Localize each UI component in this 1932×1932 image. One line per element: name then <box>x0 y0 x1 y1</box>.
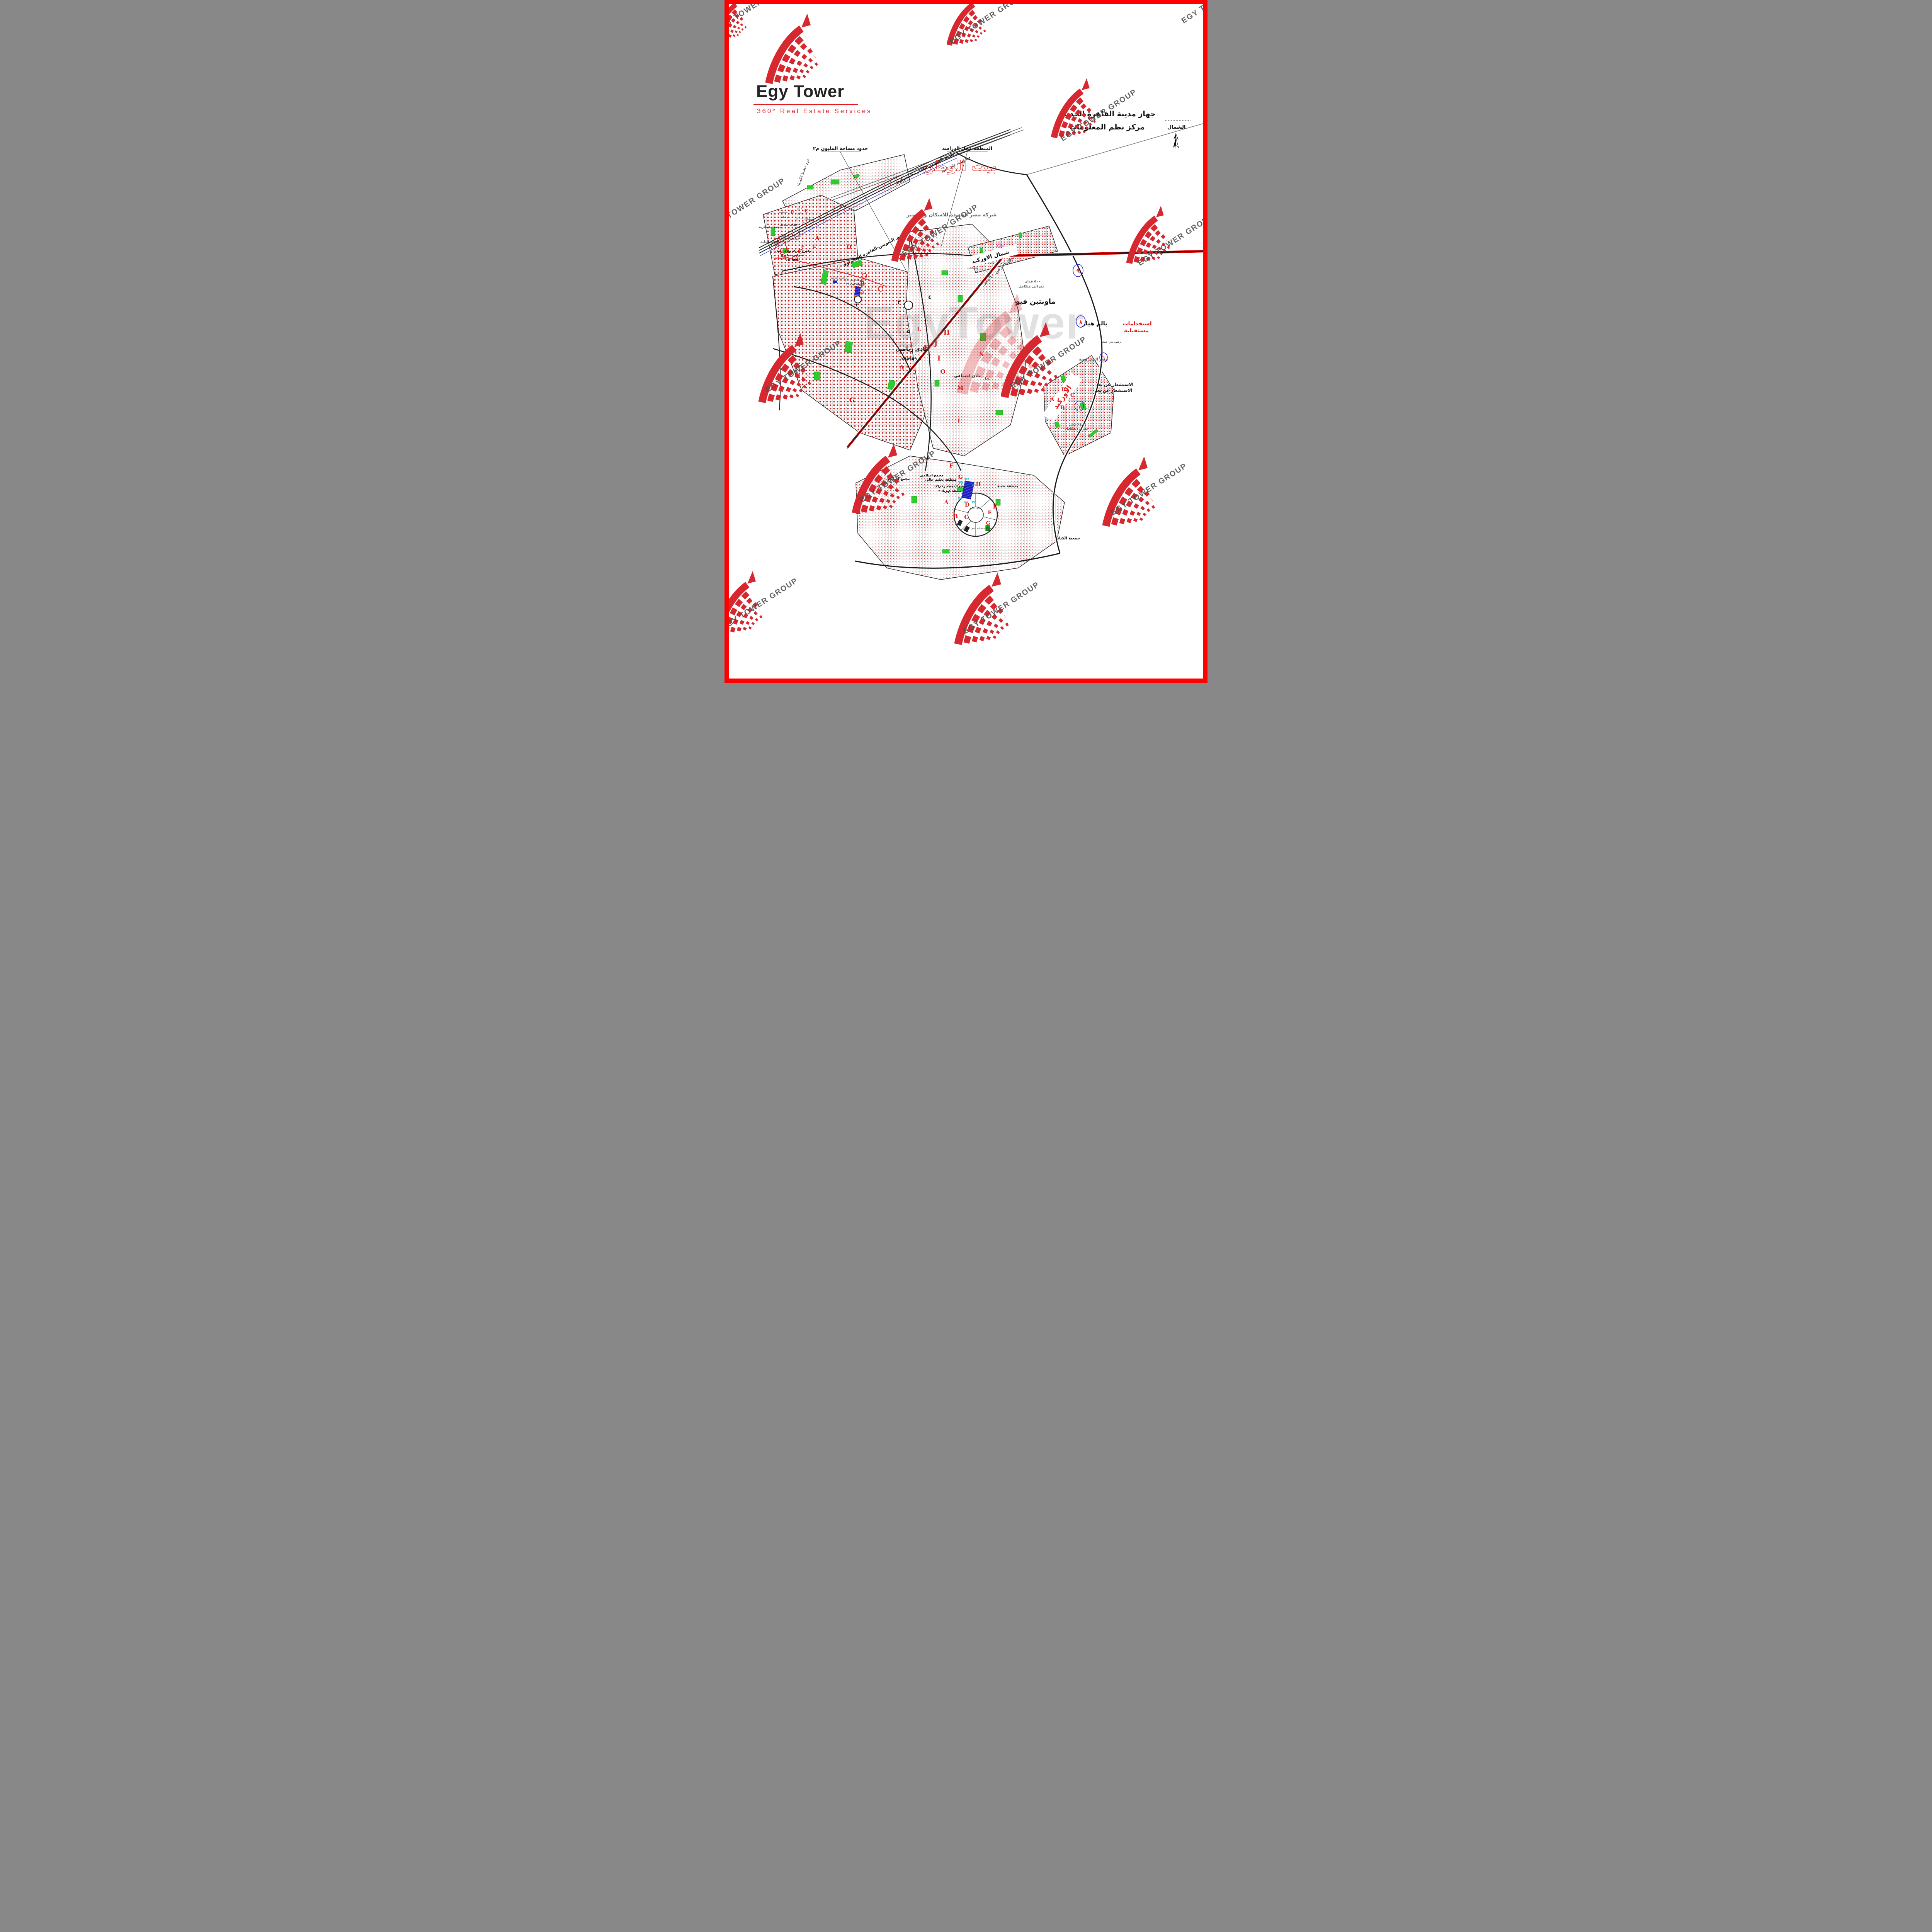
svg-text:A: A <box>899 364 904 371</box>
svg-text:N: N <box>979 352 984 357</box>
svg-text:G: G <box>986 520 990 526</box>
zone-fed500-1: ٥٠٠ فدان <box>1024 280 1040 284</box>
zone-remote-sensing-1: الاستشعار عن بعد <box>1096 382 1134 387</box>
zone-station2-1: موقع المحطة رقم(٢) <box>934 485 967 488</box>
road-number-4: ٤ <box>928 294 931 300</box>
svg-text:M: M <box>957 384 964 391</box>
zone-mosque: مسجد <box>802 221 808 224</box>
svg-text:٩: ٩ <box>1077 267 1080 275</box>
svg-text:P4: P4 <box>958 497 963 500</box>
developer-label: شركة مصر الجديدة للاسكان والتعمير <box>906 212 997 218</box>
zone-wadi-nile-fed: 10 fed <box>786 259 798 262</box>
road-number-3b: ٣ <box>855 302 859 308</box>
svg-text:C: C <box>964 514 968 520</box>
svg-text:G: G <box>985 376 989 382</box>
zone-fed8784-1: ٨٧٫٨٤ فدان <box>1069 423 1087 426</box>
north-arrow-icon <box>1172 133 1180 148</box>
svg-text:H: H <box>944 329 950 337</box>
map-poster: بيت الوطن شركة مصر الجديدة للاسكان والتع… <box>724 0 1207 683</box>
svg-text:B: B <box>860 280 865 287</box>
svg-text:K: K <box>923 344 930 352</box>
authority-line1: جهاز مدينة القاهرة الجديدة <box>1030 107 1184 121</box>
svg-text:L: L <box>957 418 961 424</box>
svg-text:A: A <box>944 500 949 506</box>
road-number-5: ٥ <box>907 329 910 335</box>
service-lands-marker <box>833 281 837 283</box>
zone-services-1: خدمات <box>779 211 787 214</box>
svg-text:F: F <box>988 510 992 516</box>
zone-services-3: خدمات <box>791 223 799 226</box>
svg-text:J: J <box>934 340 937 347</box>
svg-text:G: G <box>958 474 963 480</box>
zone-kenana: جمعية الكنانة <box>1055 536 1080 541</box>
svg-text:C: C <box>1070 393 1074 398</box>
zone-fed500-2: عمرانى متكامل <box>1019 285 1045 289</box>
authority-line2: مركز نظم المعلومات <box>1030 121 1184 134</box>
zone-military: منطقة عسكرية <box>759 225 781 229</box>
zone-sports-club: نادى رياضى <box>895 346 927 352</box>
zone-mountain-view: ماونتين فيو <box>1015 298 1055 306</box>
north-label: الشمال <box>1167 124 1185 130</box>
svg-text:A: A <box>815 235 820 242</box>
zone-fed8784-2: عمرانى متكامل <box>1065 427 1088 430</box>
svg-text:٦: ٦ <box>1102 355 1105 361</box>
svg-text:B: B <box>1061 405 1065 411</box>
zone-leisure: ترفيهى-تجارى-فندقى <box>1101 341 1121 344</box>
zone-station2-2: محطة كهرباء ٢ <box>939 489 961 493</box>
svg-text:A: A <box>797 230 801 235</box>
authority-title: جهاز مدينة القاهرة الجديدة مركز نظم المع… <box>1030 107 1184 134</box>
svg-text:H: H <box>976 481 981 488</box>
zone-commercial-1: تجارى <box>798 212 803 215</box>
roundabout-1 <box>904 301 913 310</box>
zone-services-center8: مركز خدمات الحى الثامن <box>963 527 992 530</box>
zone-admin: ادارى <box>797 207 802 210</box>
svg-text:F: F <box>949 463 953 469</box>
zone-service-lands-3: اراضى خدمية <box>855 287 872 291</box>
zone-higher-edu: منطقة تعليم عالى <box>925 478 956 482</box>
svg-text:A: A <box>1050 397 1054 403</box>
zone-future-uses-2: مستقبلية <box>1124 328 1149 334</box>
zone-sports-club-area: ٢٩٥٩٥٩٫٨ <box>901 356 921 361</box>
callout-million-area: حدود مساحة المليون م٢ <box>813 146 868 151</box>
road-number-3: ٣ <box>898 299 901 305</box>
svg-text:D: D <box>846 243 852 250</box>
svg-text:p1: p1 <box>852 286 856 289</box>
svg-text:p3: p3 <box>860 291 864 294</box>
zone-social-club-1: نادى اجتماعى <box>795 217 808 220</box>
zone-islamic-2: مجمع اسلامى <box>920 474 944 478</box>
zone-future-uses-1: استخدامات <box>1122 321 1151 327</box>
svg-text:P2: P2 <box>965 478 969 481</box>
svg-text:D: D <box>965 502 969 508</box>
header-rule <box>753 103 1193 103</box>
zone-islamic-1: مجمع اسلامى <box>886 477 910 481</box>
svg-text:C: C <box>804 208 808 214</box>
svg-text:B: B <box>953 514 958 520</box>
svg-text:E: E <box>993 504 997 510</box>
zone-service-lands-1: اراضى خدمية <box>823 267 840 270</box>
svg-text:p4: p4 <box>854 294 858 298</box>
zone-services-2: خدمات <box>781 216 788 219</box>
svg-text:١: ١ <box>1078 404 1081 410</box>
svg-text:٨: ٨ <box>1079 319 1083 326</box>
logo-tagline: 360° Real Estate Services <box>757 107 872 115</box>
road-label-hv-row: حرم خطوط الكهرباء <box>796 158 810 187</box>
map-reference-line <box>1165 120 1190 121</box>
egy-tower-logo-text: Egy Tower <box>756 82 844 101</box>
callout-study-area: المنطقة محل الدراسة <box>942 146 992 151</box>
svg-text:L: L <box>917 326 921 333</box>
svg-text:I: I <box>937 355 940 362</box>
logo-underline <box>753 104 858 105</box>
zone-commercial-2: تجارى <box>996 244 1004 247</box>
zone-social-club-2: نادى اجتماعى <box>954 374 980 378</box>
svg-text:F: F <box>801 244 804 249</box>
svg-text:G: G <box>849 396 855 404</box>
svg-text:H: H <box>855 509 861 515</box>
svg-text:O: O <box>940 368 945 375</box>
zone-medical: منطقة طبية <box>997 485 1018 488</box>
svg-text:E: E <box>813 244 816 249</box>
svg-text:D: D <box>1061 387 1065 393</box>
zone-remote-sensing-2: الاستشعار عن بعد <box>1095 388 1133 393</box>
zone-grand-mosque: مسجد جامع <box>970 507 981 510</box>
svg-text:P3: P3 <box>959 481 963 485</box>
zone-services-red: خدمات <box>774 256 787 260</box>
zone-service-lands-2: اراضى خدمية <box>830 276 847 279</box>
zone-wadi-nile: مقترح شركة وادى النيل <box>775 249 811 253</box>
svg-text:E: E <box>791 210 794 216</box>
svg-text:P6: P6 <box>972 500 976 504</box>
egy-tower-logo-icon <box>758 12 831 85</box>
zone-karnak-area: 42123.369 m2 <box>781 238 799 241</box>
